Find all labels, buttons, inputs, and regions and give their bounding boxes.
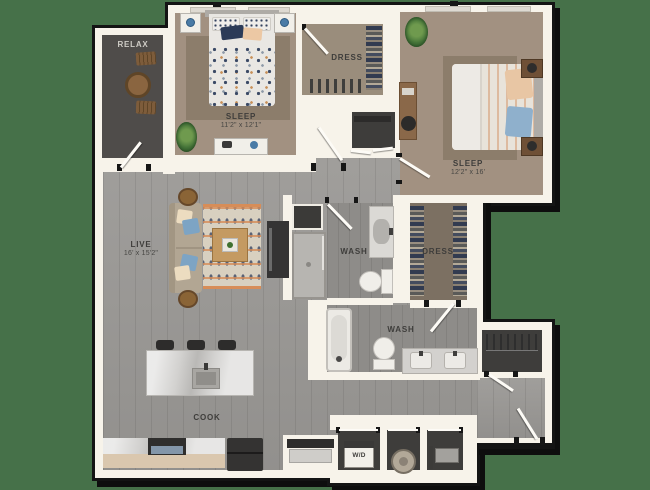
- bar-stool: [218, 340, 236, 350]
- hanging-clothes: [366, 26, 382, 90]
- bed-duvet: [452, 64, 482, 150]
- refrigerator-seam: [227, 452, 263, 454]
- wall-segment: [308, 300, 327, 380]
- bath-faucet: [336, 356, 342, 362]
- room-label-sleep-2: SLEEP: [453, 159, 483, 168]
- floor-plan: RELAX SLEEP 11'2" x 12'1" DRESS SLEEP 12…: [0, 0, 650, 490]
- room-label-wash-2: WASH: [387, 325, 414, 334]
- room-label-relax: RELAX: [117, 40, 148, 49]
- door-jamb-tick: [424, 300, 429, 307]
- door-jamb-tick: [396, 180, 402, 184]
- hanging-clothes: [453, 206, 467, 296]
- shower-drain: [306, 262, 311, 267]
- door-jamb-tick: [354, 197, 358, 203]
- door-jamb-tick: [514, 437, 519, 445]
- side-table: [178, 290, 198, 308]
- shoe-row: [310, 79, 362, 93]
- door-jamb-tick: [341, 163, 346, 171]
- patio-table: [125, 72, 151, 98]
- throw-pillow: [174, 265, 191, 281]
- stove-front: [151, 446, 183, 454]
- wall-bump: [213, 2, 221, 7]
- door-jamb-tick: [146, 164, 151, 171]
- dresser-decor: [250, 141, 258, 149]
- door-jamb-tick: [311, 163, 316, 171]
- wall-segment: [410, 300, 483, 308]
- wall-segment: [95, 164, 175, 172]
- room-label-wash-1: WASH: [340, 247, 367, 256]
- nightstand-decor: [186, 18, 195, 27]
- wall-segment: [163, 28, 175, 174]
- wall-segment: [327, 298, 393, 305]
- nightstand-lamp: [527, 63, 537, 73]
- bar-stool: [156, 340, 174, 350]
- bathtub-basin: [331, 315, 347, 361]
- side-table: [178, 188, 198, 206]
- coat-hangers: [486, 334, 538, 351]
- patio-chair: [136, 100, 157, 114]
- wall-segment: [383, 24, 400, 112]
- shower-glass: [322, 236, 324, 270]
- room-dims-sleep-2: 12'2" x 16': [451, 169, 485, 176]
- bath-cabinet: [292, 204, 323, 230]
- dresser-decor: [222, 141, 232, 148]
- room-dims-live: 16' x 15'2": [124, 250, 158, 257]
- water-heater-core: [399, 457, 408, 466]
- bed-pillow: [505, 106, 534, 138]
- room-dims-sleep-1: 11'2" x 12'1": [221, 122, 261, 129]
- room-label-dress-2: DRESS: [422, 247, 454, 256]
- wall-segment: [380, 428, 387, 472]
- desk-decor: [402, 88, 414, 95]
- room-label-sleep-1: SLEEP: [226, 112, 256, 121]
- bar-stool: [187, 340, 205, 350]
- sink: [373, 219, 390, 244]
- room-label-cook: COOK: [193, 413, 220, 422]
- room-label-live: LIVE: [131, 240, 152, 249]
- door-jamb-tick: [513, 371, 518, 377]
- faucet: [453, 351, 457, 356]
- wall-bump: [450, 1, 458, 6]
- toilet-bowl: [359, 271, 382, 292]
- sofa-seam: [176, 247, 202, 249]
- island-sink-basin: [196, 372, 216, 385]
- faucet: [419, 351, 423, 356]
- wall-segment: [393, 195, 410, 303]
- nightstand-lamp: [527, 141, 537, 151]
- patio-chair: [136, 51, 157, 65]
- wall-segment: [463, 426, 477, 476]
- toilet-bowl: [373, 337, 395, 360]
- wall-segment: [330, 415, 477, 430]
- door-jamb-tick: [456, 300, 461, 307]
- washer-dryer-top: [344, 441, 374, 448]
- door-jamb-tick: [396, 153, 402, 157]
- throw-pillow: [182, 218, 200, 236]
- door-jamb-tick: [540, 437, 545, 445]
- closet-door-line: [428, 429, 461, 431]
- closet-door-line: [339, 429, 378, 431]
- closet-shelf: [354, 116, 391, 122]
- window: [425, 6, 471, 12]
- bed-pillow: [220, 25, 244, 41]
- storage-rail: [429, 446, 433, 469]
- bed-pillow: [243, 27, 263, 41]
- room-label-laundry: W/D: [352, 452, 365, 459]
- coffee-table-plant: [227, 242, 233, 248]
- closet-door-line: [388, 429, 418, 431]
- storage-shelf: [435, 448, 459, 463]
- kitchen-cabinets: [103, 454, 225, 468]
- toilet-tank: [373, 359, 395, 370]
- wall-segment: [296, 95, 352, 155]
- nightstand-decor: [280, 18, 289, 27]
- bed-blanket: [209, 44, 275, 106]
- wall-segment: [168, 155, 316, 172]
- plant: [405, 17, 428, 47]
- wall-segment: [420, 428, 427, 472]
- plant: [176, 122, 197, 152]
- room-label-dress-1: DRESS: [331, 53, 363, 62]
- refrigerator: [227, 438, 263, 471]
- faucet: [389, 228, 393, 235]
- entry-bench-seat: [289, 449, 332, 463]
- entry-bench-back: [287, 439, 334, 448]
- door-jamb-tick: [325, 197, 329, 203]
- tv-screen: [269, 228, 272, 271]
- toilet-tank: [381, 269, 393, 294]
- faucet: [204, 363, 208, 370]
- desk-chair: [401, 116, 416, 131]
- window: [487, 6, 531, 12]
- wall-segment: [467, 195, 483, 303]
